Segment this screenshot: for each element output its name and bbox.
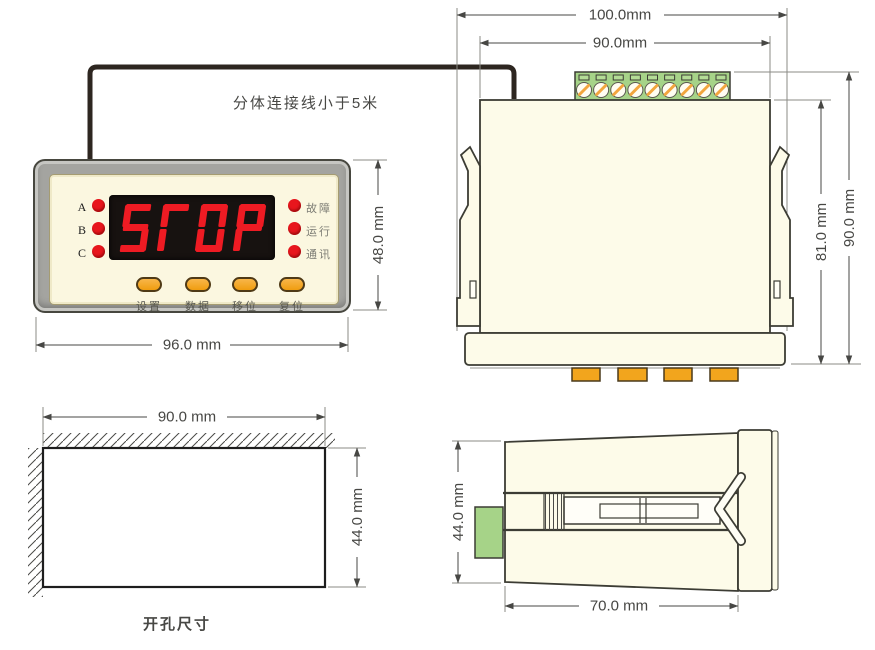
seg-digit — [195, 204, 229, 252]
dim-rear-outer-width: 100.0mm — [589, 7, 652, 24]
phase-led-c — [92, 245, 105, 258]
terminal-screws — [577, 75, 729, 98]
rear-view: 100.0mm 90.0mm 81.0 mm 90.0 mm — [457, 7, 861, 382]
data-button-label: 数据 — [174, 298, 222, 314]
status-led-label-comm: 通讯 — [306, 246, 332, 262]
phase-led-b — [92, 222, 105, 235]
phase-led-label-a: A — [74, 200, 90, 215]
mounting-clip-left — [457, 147, 480, 326]
rear-body — [480, 100, 770, 333]
terminal-block — [575, 72, 730, 103]
reset-button-label: 复位 — [268, 298, 316, 314]
mounting-clip-right — [770, 147, 793, 326]
side-terminal-block — [475, 507, 503, 558]
cutout-rect — [43, 448, 325, 587]
cable-note: 分体连接线小于5米 — [233, 95, 379, 112]
dim-cutout-width: 90.0 mm — [158, 409, 216, 426]
wall-hatch-top — [43, 433, 335, 448]
dim-rear-inner-width: 90.0mm — [593, 35, 647, 52]
set-button — [136, 277, 162, 292]
set-button-label: 设置 — [125, 298, 173, 314]
side-view: 44.0 mm 70.0 mm — [450, 430, 778, 615]
phase-led-a — [92, 199, 105, 212]
seven-seg-display — [109, 195, 275, 260]
status-led-label-fault: 故障 — [306, 200, 332, 216]
dim-side-depth: 70.0 mm — [590, 598, 648, 615]
seg-digit — [233, 204, 267, 252]
shift-button-label: 移位 — [221, 298, 269, 314]
phase-led-label-c: C — [74, 246, 90, 261]
cutout-caption: 开孔尺寸 — [143, 615, 211, 633]
status-led-run — [288, 222, 301, 235]
status-led-comm — [288, 245, 301, 258]
front-view: A B C 故障 运行 通讯 设置 数据 移位 复位 — [33, 159, 351, 313]
seg-digit — [119, 204, 153, 252]
dim-front-width: 96.0 mm — [163, 337, 221, 354]
status-led-fault — [288, 199, 301, 212]
dim-rear-body-height: 81.0 mm — [813, 203, 830, 261]
data-button — [185, 277, 211, 292]
dim-front-height: 48.0 mm — [370, 206, 387, 264]
dim-cutout-height: 44.0 mm — [349, 488, 366, 546]
rear-buttons — [572, 368, 738, 381]
shift-button — [232, 277, 258, 292]
dim-side-height: 44.0 mm — [450, 483, 467, 541]
reset-button — [279, 277, 305, 292]
rear-bezel — [465, 333, 785, 365]
seg-digit — [157, 204, 191, 252]
phase-led-label-b: B — [74, 223, 90, 238]
cutout-view: 90.0 mm 44.0 mm 开孔尺寸 — [28, 407, 366, 633]
side-bezel — [738, 430, 772, 591]
wall-hatch-left — [28, 448, 43, 597]
dimension-drawing-page: 分体连接线小于5米 — [0, 0, 875, 650]
status-led-label-run: 运行 — [306, 223, 332, 239]
dim-rear-total-height: 90.0 mm — [841, 189, 858, 247]
drawing-layer: 分体连接线小于5米 — [0, 0, 875, 650]
connection-cable — [90, 67, 514, 161]
